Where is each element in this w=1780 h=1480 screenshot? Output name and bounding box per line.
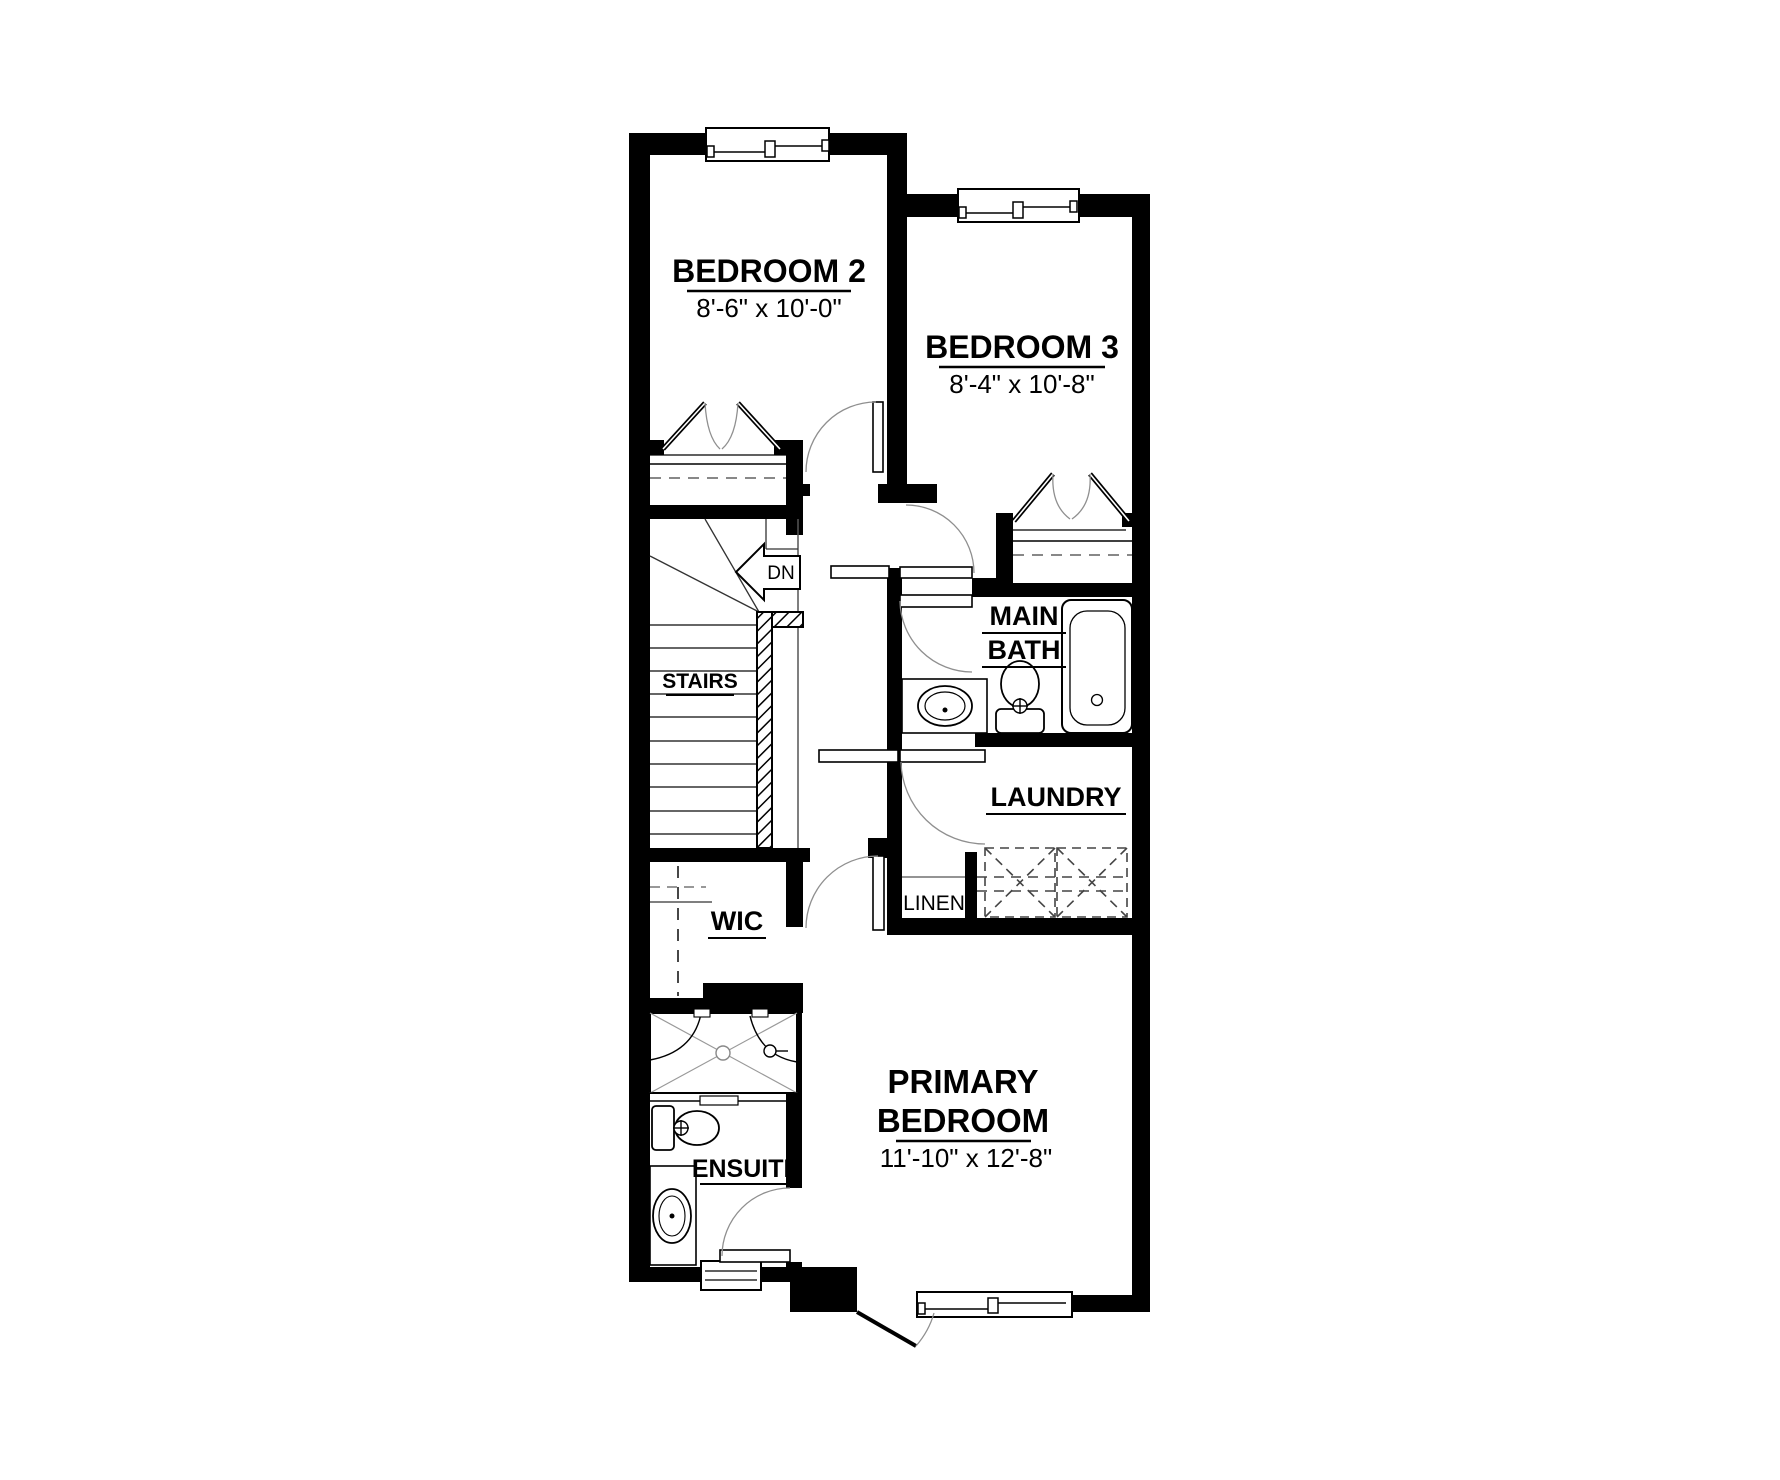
wic-name: WIC	[711, 906, 763, 936]
room-label-laundry: LAUNDRY	[986, 782, 1126, 814]
linen-name: LINEN	[903, 892, 965, 915]
laundry-name: LAUNDRY	[991, 782, 1122, 812]
room-label-linen: LINEN	[903, 892, 965, 915]
room-label-main-bath: MAIN BATH	[982, 601, 1066, 667]
room-label-bedroom3: BEDROOM 3 8'-4" x 10'-8"	[925, 329, 1119, 399]
floorplan-page: DN	[0, 0, 1780, 1480]
vanity-sink-ensuite	[650, 1166, 696, 1265]
window-ensuite	[701, 1261, 761, 1290]
shower-handle-icon	[764, 1045, 776, 1057]
bathtub	[1062, 600, 1132, 733]
room-label-ensuite: ENSUITE	[692, 1155, 800, 1184]
dn-label: DN	[767, 563, 794, 584]
bedroom2-name: BEDROOM 2	[672, 253, 866, 289]
primary-line2: BEDROOM	[877, 1102, 1049, 1139]
bedroom3-dims: 8'-4" x 10'-8"	[949, 369, 1094, 399]
window-bedroom3	[958, 189, 1079, 222]
room-label-primary: PRIMARY BEDROOM 11'-10" x 12'-8"	[877, 1063, 1052, 1173]
bedroom2-dims: 8'-6" x 10'-0"	[696, 293, 841, 323]
vanity-sink-main-bath	[902, 679, 987, 733]
bedroom3-name: BEDROOM 3	[925, 329, 1119, 365]
window-bedroom2	[706, 128, 829, 161]
primary-dims: 11'-10" x 12'-8"	[880, 1143, 1052, 1173]
floorplan-svg: DN	[0, 0, 1780, 1480]
main-bath-line1: MAIN	[990, 601, 1059, 631]
room-label-stairs: STAIRS	[662, 670, 737, 695]
room-label-wic: WIC	[708, 906, 766, 938]
stairs-name: STAIRS	[662, 670, 737, 693]
room-label-bedroom2: BEDROOM 2 8'-6" x 10'-0"	[672, 253, 866, 323]
shower	[650, 1009, 797, 1105]
primary-line1: PRIMARY	[888, 1063, 1039, 1100]
main-bath-line2: BATH	[988, 635, 1061, 665]
ensuite-name: ENSUITE	[692, 1155, 800, 1183]
window-primary	[917, 1292, 1072, 1317]
